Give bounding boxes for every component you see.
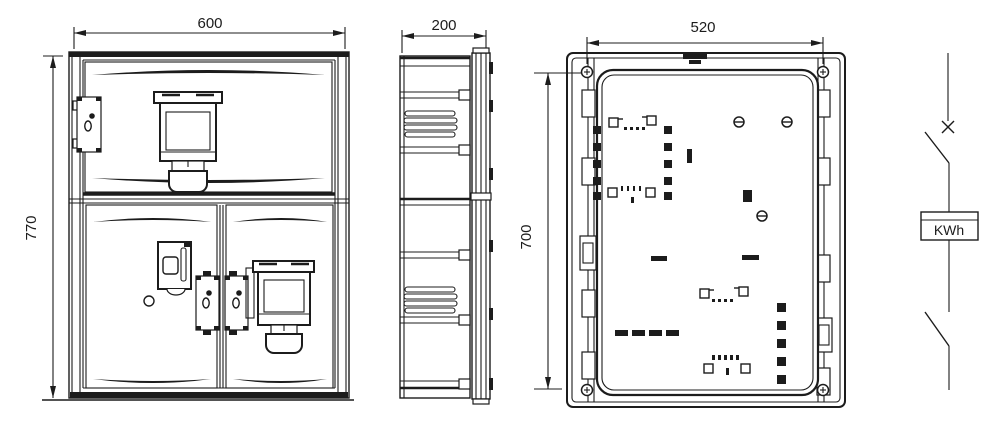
kwh-meter-label: KWh: [934, 222, 964, 238]
front-width-dimension: 600: [74, 15, 345, 49]
screw-icon: [582, 67, 593, 78]
fuse-switch-symbol: [925, 121, 954, 163]
back-view: 520 700: [518, 19, 845, 407]
single-line-diagram: KWh: [921, 53, 978, 390]
front-view: 600 770: [23, 15, 354, 400]
side-view: 200: [400, 17, 493, 404]
screw-icon: [818, 385, 829, 396]
upper-door-lock: [73, 97, 101, 152]
side-body: [400, 56, 470, 398]
fuse-x-icon: [942, 121, 954, 133]
center-mullion: [220, 205, 223, 388]
side-depth-label: 200: [431, 17, 456, 34]
kwh-meter-symbol: KWh: [921, 212, 978, 240]
switch-symbol: [925, 312, 949, 346]
back-height-label: 700: [518, 224, 535, 249]
side-door-panel: [471, 48, 493, 404]
lower-right-window: [246, 261, 314, 353]
vent-slots-lower: [404, 287, 457, 313]
door-handle: [158, 242, 191, 295]
back-width-label: 520: [690, 19, 715, 36]
door-hole: [144, 296, 154, 306]
screw-icon: [582, 385, 593, 396]
front-height-dimension: 770: [23, 56, 63, 398]
lower-door-locks: [196, 271, 248, 335]
screw-icon: [818, 67, 829, 78]
vent-slots-upper: [404, 111, 457, 137]
front-height-label: 770: [23, 215, 40, 240]
technical-drawing: 600 770: [0, 0, 1000, 422]
drawing-canvas: 600 770: [0, 0, 1000, 422]
upper-meter-window: [154, 92, 222, 192]
back-height-dimension: 700: [518, 73, 584, 389]
front-width-label: 600: [197, 15, 222, 32]
